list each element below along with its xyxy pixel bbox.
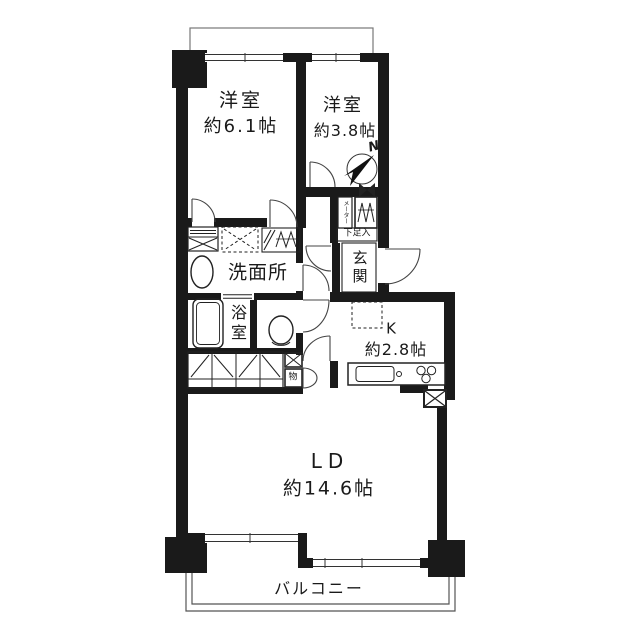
door-entrance [385, 249, 420, 284]
linen-closet [262, 228, 300, 252]
refrigerator-space [352, 302, 382, 328]
pipe-space-kitchen [424, 390, 446, 407]
bedroom2-label: 洋室 [323, 97, 363, 115]
washing-machine-space [222, 227, 258, 252]
door-kitchen [303, 336, 330, 361]
entrance-label: 玄関 [352, 250, 367, 286]
living-dining-label: LD [311, 451, 350, 471]
washroom-label: 洗面所 [228, 264, 288, 283]
bedroom1-closet [188, 227, 218, 251]
shoe-cabinet-label: 下足入 [343, 230, 370, 239]
floorplan-page: 洋室 約6.1帖 洋室 約3.8帖 洗面所 浴室 玄関 下足入 メーター 物 K… [0, 0, 640, 640]
bedroom1-label: 洋室 [219, 92, 263, 111]
door-washroom [303, 265, 329, 291]
bathtub-icon [193, 299, 223, 348]
compass-icon [344, 154, 377, 186]
window-bedroom2 [312, 53, 360, 62]
kitchen-label: K [386, 322, 396, 337]
bath-label: 浴室 [229, 304, 245, 344]
door-hall [306, 246, 331, 271]
bedroom1-size: 約6.1帖 [204, 118, 279, 136]
meter-box-label: メーター [342, 200, 348, 224]
large-closet [188, 352, 283, 388]
window-ld-right [313, 558, 420, 568]
door-bedroom1-closet [192, 199, 215, 222]
parapet-outline [190, 28, 373, 55]
bath-door [223, 295, 252, 299]
bedroom2-size: 約3.8帖 [314, 123, 376, 139]
door-bedroom1 [270, 200, 297, 227]
door-living [303, 368, 317, 388]
balcony-label: バルコニー [274, 581, 364, 597]
window-bedroom1 [205, 53, 283, 62]
living-dining-size: 約14.6帖 [283, 480, 375, 499]
washbasin-icon [191, 256, 213, 288]
door-bedroom2 [310, 162, 335, 187]
pipe-space-small [285, 353, 302, 367]
kitchen-size: 約2.8帖 [365, 342, 427, 358]
storage-label: 物 [288, 374, 297, 383]
bathtub-inner [197, 303, 220, 345]
mb-box [355, 197, 377, 228]
floorplan-drawing [0, 0, 640, 640]
door-toilet [303, 300, 329, 332]
kitchen-counter [348, 363, 445, 385]
window-ld-left [205, 533, 298, 543]
balcony-outline [186, 543, 455, 611]
toilet-icon [269, 316, 293, 345]
